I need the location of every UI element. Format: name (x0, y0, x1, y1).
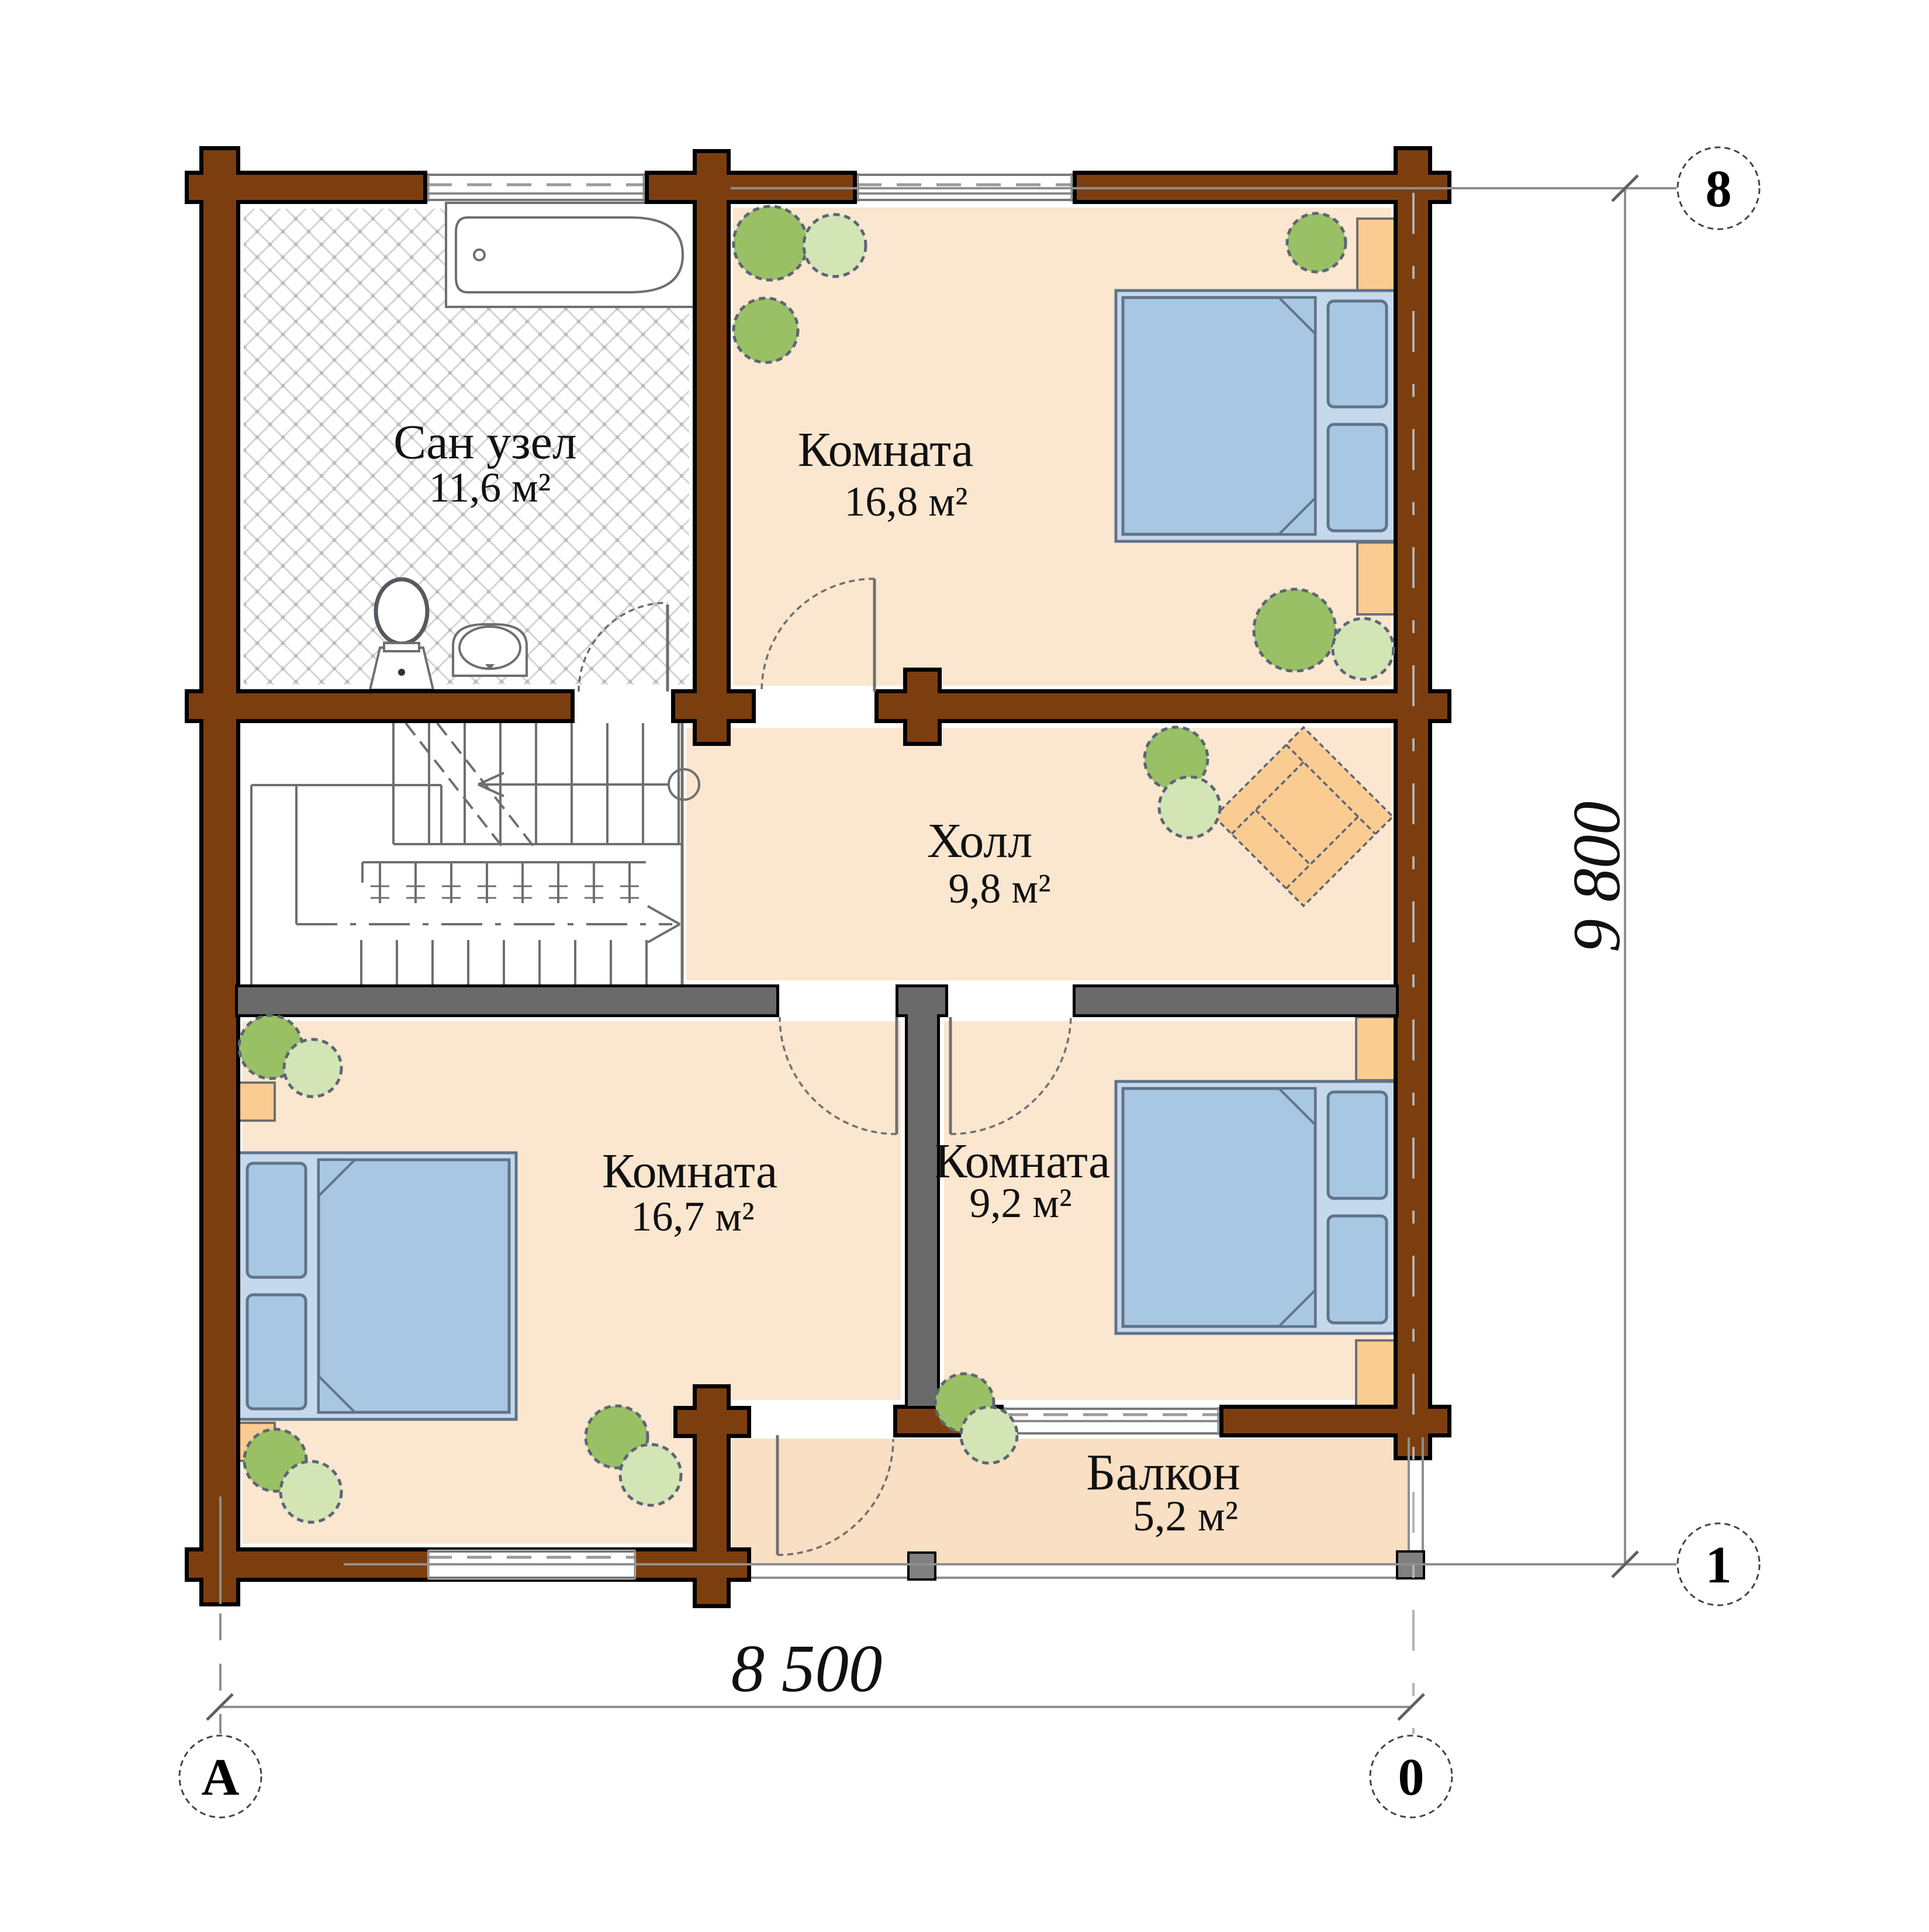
svg-text:9,8 м²: 9,8 м² (948, 865, 1050, 912)
svg-text:5,2 м²: 5,2 м² (1133, 1492, 1238, 1540)
svg-text:16,7 м²: 16,7 м² (631, 1193, 754, 1240)
svg-text:1: 1 (1706, 1536, 1732, 1594)
svg-text:A: A (202, 1748, 240, 1806)
svg-text:8 500: 8 500 (731, 1632, 883, 1706)
svg-text:16,8 м²: 16,8 м² (844, 478, 967, 525)
svg-text:11,6 м²: 11,6 м² (429, 464, 551, 511)
svg-text:9,2 м²: 9,2 м² (969, 1180, 1071, 1226)
svg-text:Холл: Холл (927, 814, 1032, 868)
svg-text:Сан узел: Сан узел (393, 415, 577, 469)
svg-text:9 800: 9 800 (1560, 801, 1634, 953)
svg-text:0: 0 (1398, 1748, 1425, 1806)
svg-text:8: 8 (1706, 160, 1732, 218)
svg-text:Комната: Комната (602, 1144, 777, 1198)
svg-text:Комната: Комната (798, 423, 973, 477)
